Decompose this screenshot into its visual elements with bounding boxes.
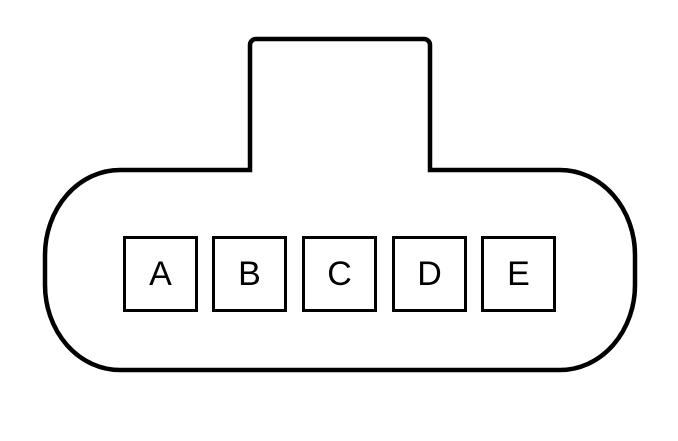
pin-label-c: C bbox=[327, 257, 352, 291]
pin-cavity-c: C bbox=[302, 236, 377, 312]
pin-label-e: E bbox=[507, 257, 530, 291]
pin-cavity-d: D bbox=[392, 236, 467, 312]
pin-label-b: B bbox=[238, 257, 261, 291]
pin-cavity-b: B bbox=[212, 236, 287, 312]
pin-cavity-e: E bbox=[481, 236, 556, 312]
connector-diagram: A B C D E bbox=[0, 0, 678, 441]
pin-label-d: D bbox=[417, 257, 442, 291]
connector-body-and-tab-outline-shape bbox=[45, 39, 635, 370]
connector-outline bbox=[0, 0, 678, 441]
pin-cavity-a: A bbox=[123, 236, 198, 312]
pin-label-a: A bbox=[149, 257, 172, 291]
